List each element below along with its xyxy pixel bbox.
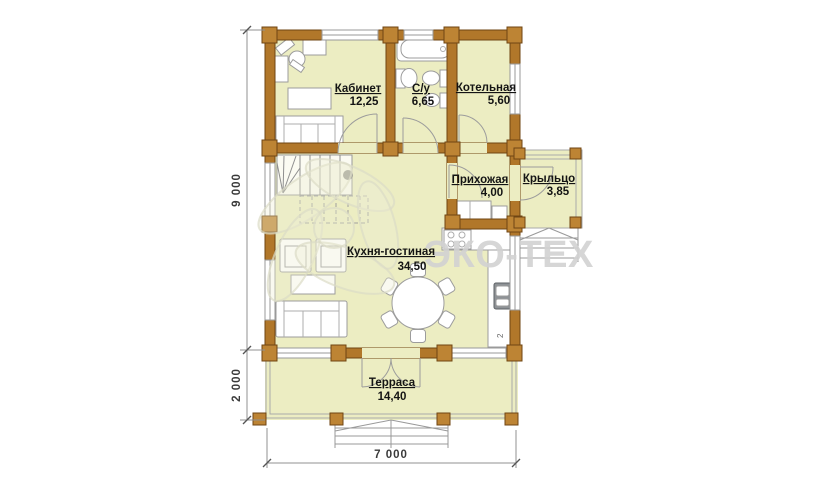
room-area-kuhnya: 34,50 <box>398 261 427 273</box>
terrace-post <box>330 413 343 425</box>
desk-return <box>275 56 288 82</box>
porch-post <box>514 148 525 159</box>
room-label-kotelnaya: Котельная <box>456 82 516 94</box>
terrace-post <box>437 413 450 425</box>
kitchen-sink <box>494 283 511 309</box>
room-label-terrasa: Терраса <box>369 377 416 389</box>
porch-post <box>570 148 581 159</box>
room-area-prihozhaya: 4,00 <box>481 187 503 199</box>
wall-bath-boiler-hall <box>447 40 457 228</box>
room-area-su: 6,65 <box>412 96 435 108</box>
terrace-steps <box>335 420 448 448</box>
room-area-kabinet: 12,25 <box>350 96 379 108</box>
dimension-height-terrace: 2 000 <box>231 368 243 402</box>
room-label-kuhnya: Кухня-гостиная <box>347 246 435 258</box>
room-area-krylco: 3,85 <box>547 186 570 198</box>
terrace-post <box>505 413 518 425</box>
room-area-terrasa: 14,40 <box>378 391 407 403</box>
dimension-height-main: 9 000 <box>231 173 243 207</box>
room-label-su: С/у <box>412 83 431 95</box>
room-label-kabinet: Кабинет <box>335 83 382 95</box>
window <box>404 30 433 40</box>
room-label-prihozhaya: Прихожая <box>452 174 509 186</box>
room-label-krylco: Крыльцо <box>523 173 575 185</box>
dimension-width: 7 000 <box>374 449 408 461</box>
floor-plan-canvas: 2 <box>0 0 820 494</box>
room-area-kotelnaya: 5,60 <box>488 95 510 107</box>
terrace-post <box>253 413 266 425</box>
office-sofa <box>276 116 343 147</box>
floor-plan-drawing: 2 <box>0 0 820 494</box>
wall-office-bath <box>386 40 395 148</box>
window <box>452 348 506 358</box>
window <box>277 348 332 358</box>
porch-post <box>514 217 525 228</box>
chair <box>411 330 426 343</box>
sofa <box>276 301 347 337</box>
porch-post <box>570 217 581 228</box>
dining-table <box>392 277 444 329</box>
window <box>322 30 378 40</box>
watermark-brand-text: ЭКО-ТЕХ <box>424 234 594 276</box>
kitchen-marker: 2 <box>496 333 505 338</box>
office-table <box>288 88 331 109</box>
terrace-floor <box>265 358 518 420</box>
